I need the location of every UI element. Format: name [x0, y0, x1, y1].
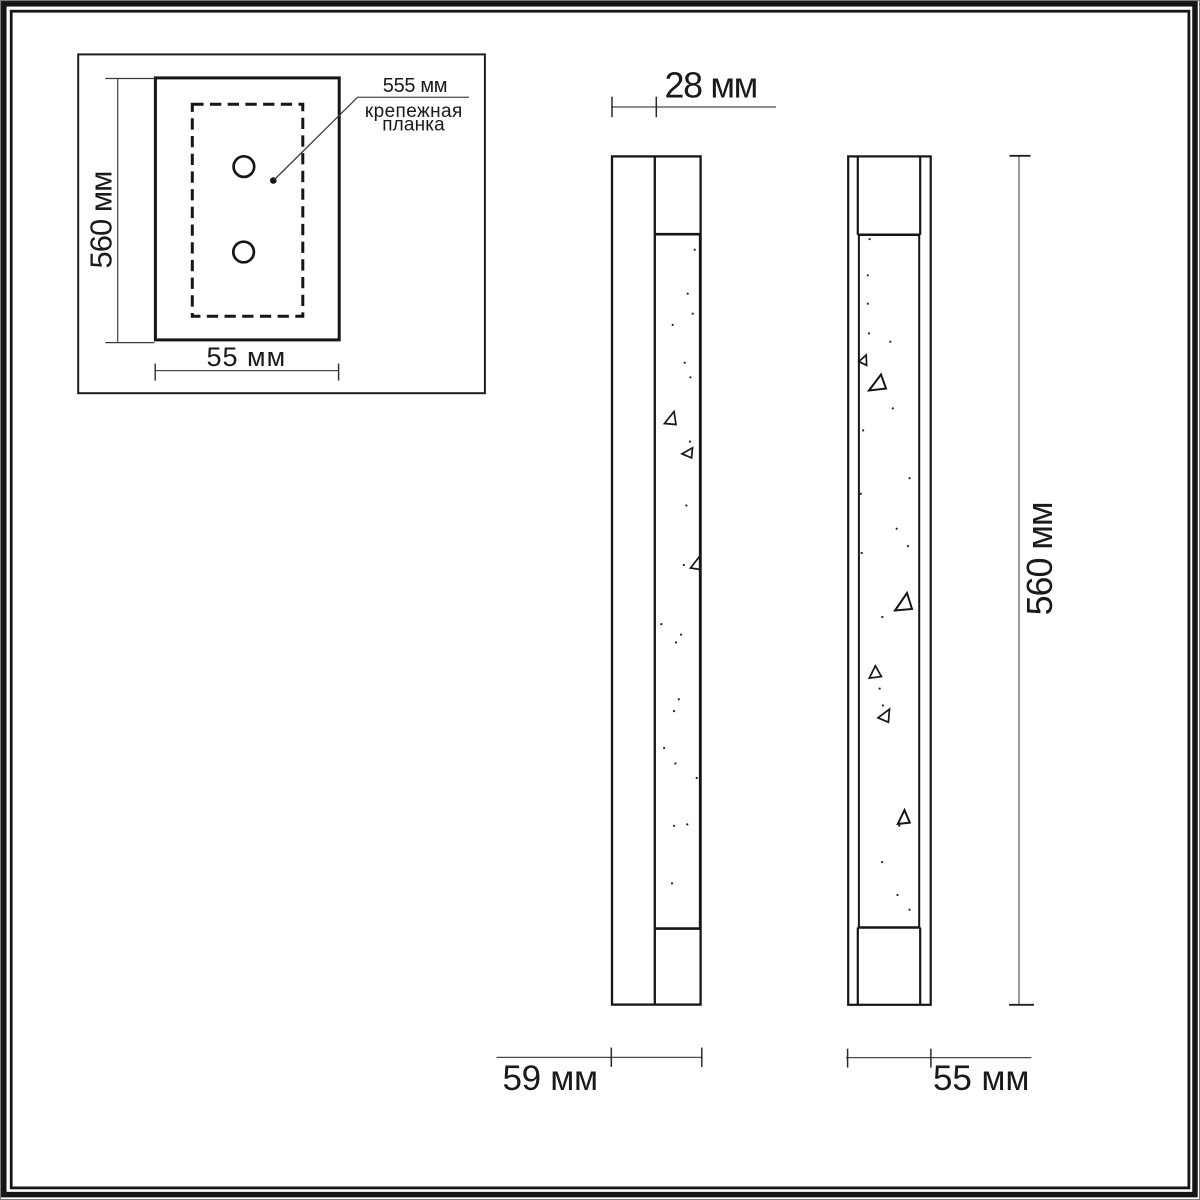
svg-text:555 мм: 555 мм: [383, 75, 447, 97]
svg-text:560 мм: 560 мм: [1019, 502, 1060, 615]
svg-text:28 мм: 28 мм: [665, 66, 757, 106]
svg-text:55 мм: 55 мм: [207, 342, 287, 372]
svg-text:55 мм: 55 мм: [933, 1059, 1029, 1098]
svg-text:планка: планка: [382, 114, 445, 135]
svg-text:560 мм: 560 мм: [84, 172, 119, 269]
svg-text:59 мм: 59 мм: [503, 1059, 598, 1098]
